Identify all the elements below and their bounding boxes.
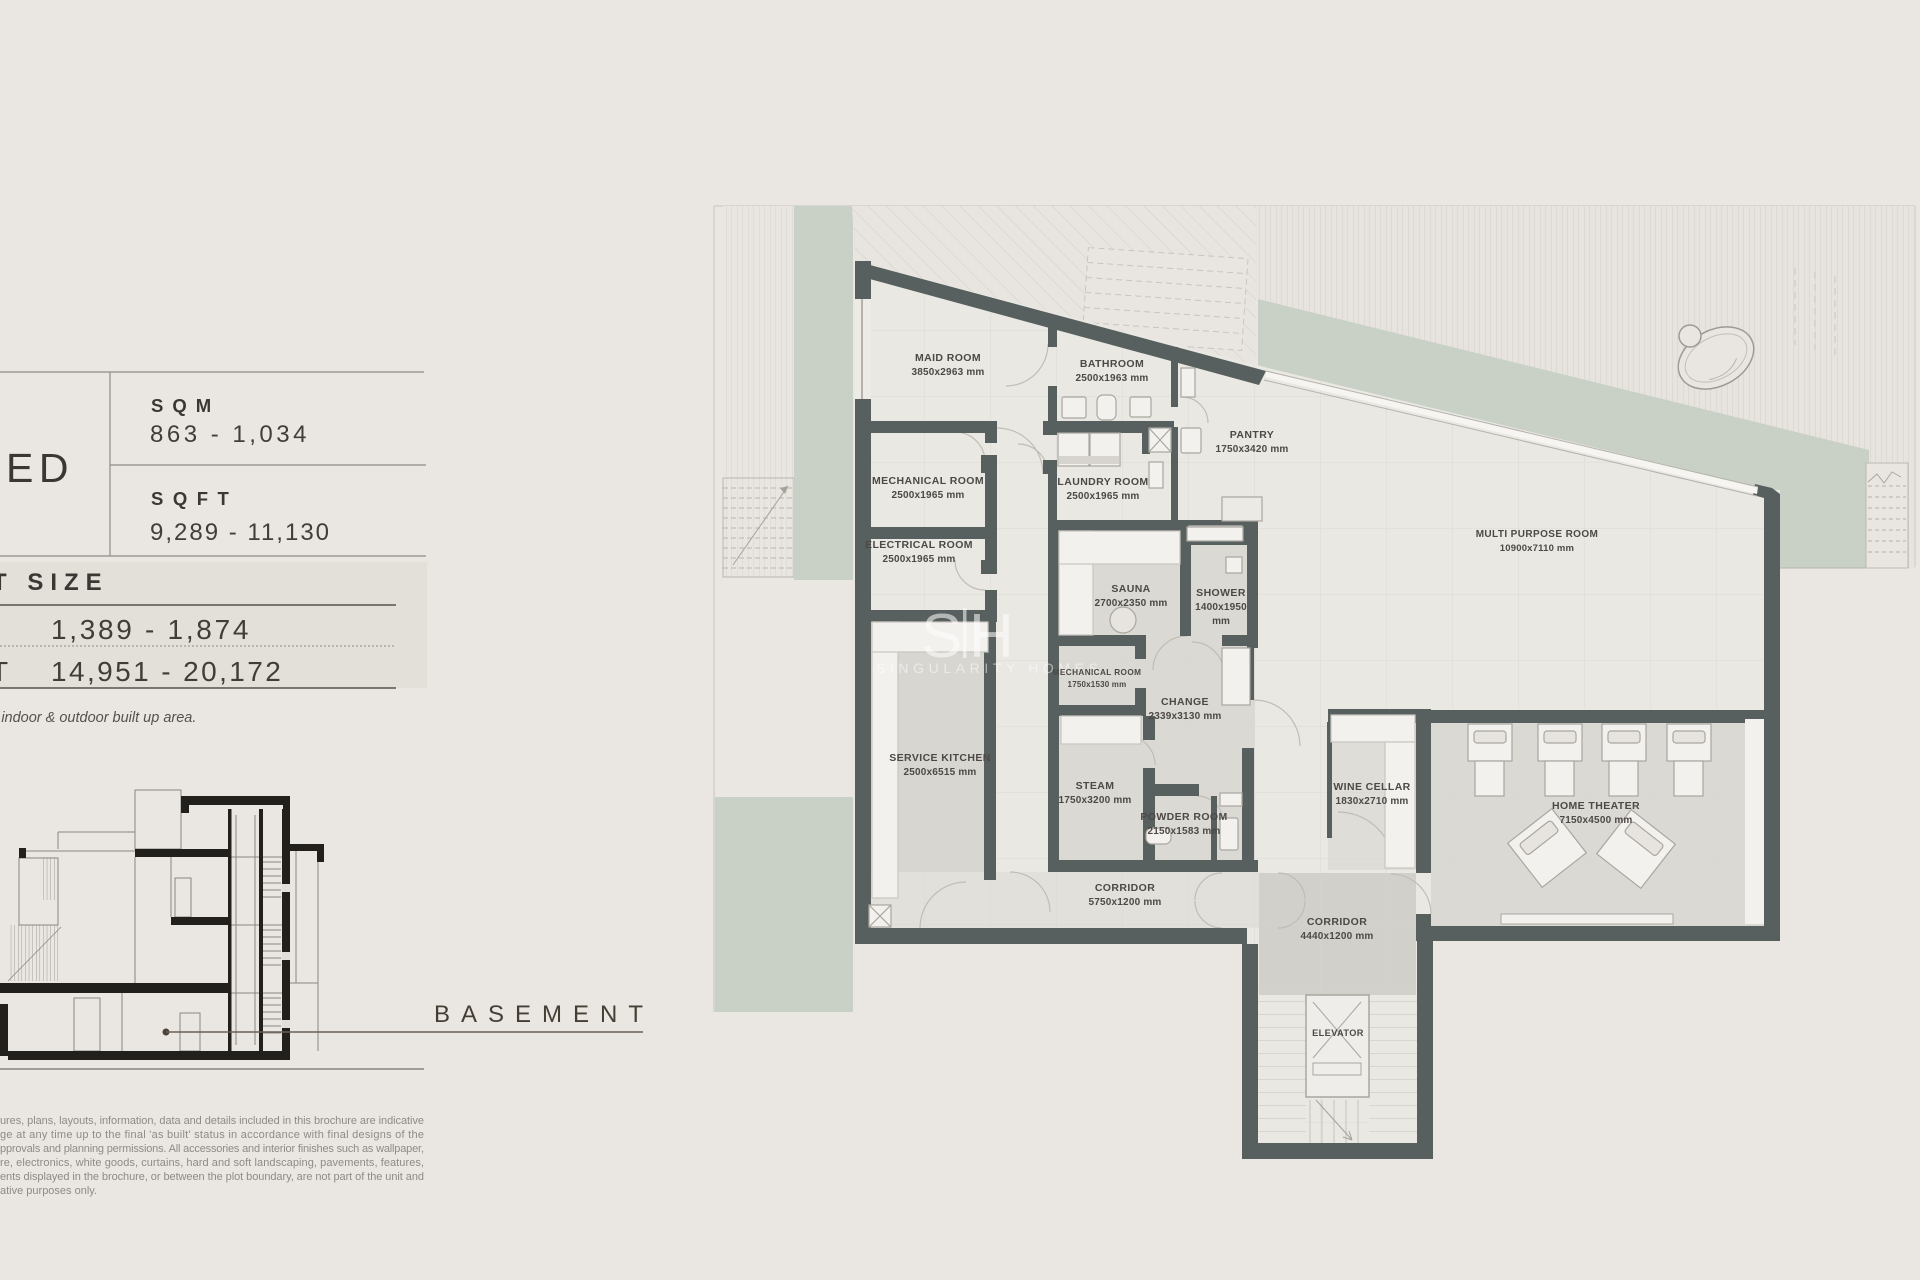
svg-text:ELEVATOR: ELEVATOR [1312, 1028, 1364, 1038]
svg-text:MAID ROOM: MAID ROOM [915, 352, 981, 364]
svg-text:WINE CELLAR: WINE CELLAR [1333, 781, 1410, 793]
svg-text:2500x1965 mm: 2500x1965 mm [891, 490, 964, 501]
svg-text:MULTI PURPOSE ROOM: MULTI PURPOSE ROOM [1476, 529, 1599, 540]
svg-text:PANTRY: PANTRY [1230, 429, 1274, 441]
svg-text:SAUNA: SAUNA [1111, 583, 1150, 595]
svg-text:mm: mm [1212, 616, 1230, 627]
svg-text:2500x1965 mm: 2500x1965 mm [1066, 491, 1139, 502]
svg-text:CORRIDOR: CORRIDOR [1095, 882, 1155, 894]
svg-text:5750x1200 mm: 5750x1200 mm [1088, 897, 1161, 908]
svg-text:ative purposes only.: ative purposes only. [0, 1185, 97, 1197]
svg-text:9,289 - 11,130: 9,289 - 11,130 [150, 519, 331, 546]
svg-text:SHOWER: SHOWER [1196, 587, 1246, 599]
svg-text:re, electronics, white goods,: re, electronics, white goods, curtains, … [0, 1157, 424, 1169]
svg-text:ents displayed in the brochure: ents displayed in the brochure, or betwe… [0, 1171, 424, 1183]
svg-text:pprovals and planning permissi: pprovals and planning permissions. All a… [0, 1143, 424, 1155]
svg-text:MECHANICAL ROOM: MECHANICAL ROOM [872, 475, 984, 487]
svg-text:CORRIDOR: CORRIDOR [1307, 916, 1367, 928]
svg-text:al indoor & outdoor built up a: al indoor & outdoor built up area. [0, 710, 196, 726]
svg-text:LAUNDRY ROOM: LAUNDRY ROOM [1057, 476, 1148, 488]
svg-text:2500x1965 mm: 2500x1965 mm [882, 554, 955, 565]
svg-text:T: T [0, 656, 9, 687]
svg-text:SQFT: SQFT [151, 488, 238, 509]
svg-text:ELECTRICAL ROOM: ELECTRICAL ROOM [865, 539, 973, 551]
svg-text:SQM: SQM [151, 395, 220, 416]
svg-text:2500x1963 mm: 2500x1963 mm [1075, 373, 1148, 384]
svg-text:ge at any time up to the final: ge at any time up to the final 'as built… [0, 1129, 424, 1141]
svg-text:SERVICE KITCHEN: SERVICE KITCHEN [889, 752, 991, 764]
svg-text:4440x1200 mm: 4440x1200 mm [1300, 931, 1373, 942]
svg-text:7150x4500 mm: 7150x4500 mm [1559, 815, 1632, 826]
svg-text:ED: ED [6, 445, 74, 491]
svg-text:2500x6515 mm: 2500x6515 mm [903, 767, 976, 778]
svg-text:1830x2710 mm: 1830x2710 mm [1335, 796, 1408, 807]
svg-text:1750x3200 mm: 1750x3200 mm [1058, 795, 1131, 806]
svg-text:1,389 - 1,874: 1,389 - 1,874 [51, 614, 251, 645]
svg-text:863 - 1,034: 863 - 1,034 [150, 421, 310, 448]
svg-text:1400x1950: 1400x1950 [1195, 602, 1247, 613]
svg-text:CHANGE: CHANGE [1161, 696, 1209, 708]
svg-text:1750x1530 mm: 1750x1530 mm [1068, 680, 1127, 689]
svg-text:STEAM: STEAM [1076, 780, 1115, 792]
svg-text:HOME THEATER: HOME THEATER [1552, 800, 1640, 812]
svg-text:MECHANICAL ROOM: MECHANICAL ROOM [1053, 668, 1142, 677]
svg-text:3850x2963 mm: 3850x2963 mm [911, 367, 984, 378]
svg-text:14,951 - 20,172: 14,951 - 20,172 [51, 656, 283, 687]
svg-text:2150x1583 mm: 2150x1583 mm [1147, 826, 1220, 837]
svg-text:2700x2350 mm: 2700x2350 mm [1094, 598, 1167, 609]
svg-text:BASEMENT: BASEMENT [434, 1001, 654, 1028]
svg-text:BATHROOM: BATHROOM [1080, 358, 1144, 370]
svg-text:T SIZE: T SIZE [0, 569, 109, 596]
svg-text:POWDER ROOM: POWDER ROOM [1140, 811, 1227, 823]
svg-text:10900x7110 mm: 10900x7110 mm [1500, 543, 1574, 554]
svg-text:1750x3420 mm: 1750x3420 mm [1215, 444, 1288, 455]
svg-text:ures, plans, layouts, informat: ures, plans, layouts, information, data … [0, 1115, 424, 1127]
svg-text:2339x3130 mm: 2339x3130 mm [1148, 711, 1221, 722]
